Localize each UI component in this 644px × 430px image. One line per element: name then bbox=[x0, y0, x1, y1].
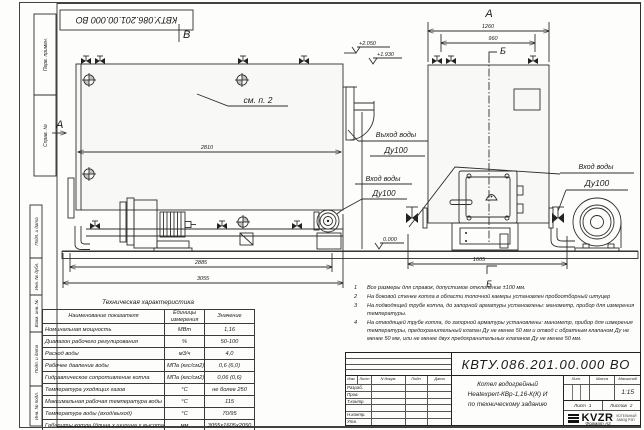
elevation-mid: +1.930 bbox=[377, 52, 395, 58]
view-a-mark: А bbox=[52, 119, 66, 133]
tech-header-unit: Единицы измерения bbox=[165, 310, 205, 324]
note-number: 4 bbox=[352, 320, 367, 344]
note-item: 4 На отводящей трубе котла, до запорной … bbox=[352, 320, 639, 344]
note-text: Все размеры для справок, допустимое откл… bbox=[367, 285, 639, 293]
note-number: 2 bbox=[352, 294, 367, 302]
margin-label-vzam-inv: Взам. инв. № bbox=[34, 299, 39, 327]
tech-table-title: Техническая характеристика bbox=[42, 299, 254, 306]
fan-scroll bbox=[573, 198, 621, 251]
table-row: Гидравлическое сопротивление котлаМПа (к… bbox=[43, 372, 255, 384]
staff-row bbox=[346, 405, 451, 412]
note-text: На подводящей трубе котла, до запорной а… bbox=[367, 303, 639, 319]
elevation-zero: 0.000 bbox=[383, 237, 398, 243]
dim-1260-label: 1260 bbox=[482, 24, 495, 30]
margin-label-inv-podl: Инв. № подл. bbox=[34, 392, 39, 420]
lit-mass-scale-headers: Лит. Масса Масштаб bbox=[564, 376, 640, 385]
staff-row: Утв. bbox=[346, 419, 451, 425]
table-row: Габариты котла (длина х ширина х высота)… bbox=[43, 420, 255, 430]
table-row: Температура уходящих газов°Сне более 250 bbox=[43, 384, 255, 396]
margin-label-podp-data-1: Подп. и дата bbox=[34, 217, 39, 246]
table-row: Расход водым3/ч4,0 bbox=[43, 348, 255, 360]
product-line2: Heatexpert-КВр-1,16-К(К) И bbox=[452, 390, 563, 400]
boiler-body-side bbox=[76, 64, 343, 210]
staff-row: Разраб. bbox=[346, 385, 451, 392]
margin-label-perv-primen: Перв. примен. bbox=[43, 38, 49, 71]
title-block-right: Лит. Масса Масштаб 1:15 Лист 1 Листов 2 bbox=[564, 376, 640, 425]
base-pedestal bbox=[452, 223, 518, 250]
section-b-top-label: Б bbox=[500, 46, 506, 56]
inlet-front-line1: Вход воды bbox=[579, 162, 615, 171]
inlet-label-side: Вход воды Ду100 bbox=[337, 174, 412, 214]
outlet-label: Выход воды Ду100 bbox=[348, 130, 433, 156]
title-block: КВТУ.086.201.00.000 ВО Изм. Лист N докум… bbox=[345, 352, 641, 426]
inlet-side-line2: Ду100 bbox=[371, 189, 396, 198]
staff-table: Изм. Лист N докум. Подп. Дата Разраб. Пр… bbox=[346, 376, 452, 425]
revision-header-row: Изм. Лист N докум. Подп. Дата bbox=[346, 376, 451, 385]
top-stamp: КВТУ.086.201.00.000 ВО bbox=[60, 10, 193, 30]
product-title: Котел водогрейный Heatexpert-КВр-1,16-К(… bbox=[452, 376, 564, 425]
dim-2885: 2885 bbox=[70, 253, 332, 272]
format-label: Формат А3 bbox=[556, 421, 640, 426]
margin-label-sprav-no: Справ. № bbox=[43, 124, 49, 147]
note-text: На отводящей трубе котла, до запорной ар… bbox=[367, 320, 639, 344]
mass-cell bbox=[590, 385, 616, 400]
revision-rows bbox=[346, 353, 452, 375]
outlet-pipe bbox=[343, 87, 374, 140]
table-row: Номинальная мощностьМВт1,16 bbox=[43, 324, 255, 336]
document-number: КВТУ.086.201.00.000 ВО bbox=[452, 353, 640, 375]
inlet-front-line2: Ду100 bbox=[584, 178, 610, 188]
inlet-side-line1: Вход воды bbox=[366, 174, 402, 183]
product-line3: по техническому заданию bbox=[452, 400, 563, 410]
air-valves-top bbox=[81, 56, 309, 64]
tech-characteristics: Техническая характеристика Наименование … bbox=[42, 299, 254, 430]
note-number: 3 bbox=[352, 303, 367, 319]
tech-header-name: Наименование показателя bbox=[43, 310, 165, 324]
note-item: 2 На боковой стенке котла в области топо… bbox=[352, 294, 639, 302]
table-row: Температура воды (вход/выход)°С70/95 bbox=[43, 408, 255, 420]
dim-3055-label: 3055 bbox=[197, 276, 210, 282]
dim-2810-label: 2810 bbox=[200, 145, 214, 151]
dim-960-label: 960 bbox=[488, 36, 498, 42]
note-item: 1 Все размеры для справок, допустимое от… bbox=[352, 285, 639, 293]
elevation-top: +2.050 bbox=[359, 41, 377, 47]
margin-label-podp-data-2: Подп. и дата bbox=[34, 344, 39, 373]
scale-value: 1:15 bbox=[615, 385, 640, 400]
table-row: Рабочее давление водыМПа (кгс/см2)0,6 (6… bbox=[43, 360, 255, 372]
table-row: Диапазон рабочего регулирования%50-100 bbox=[43, 336, 255, 348]
view-b-label: В bbox=[183, 29, 190, 41]
sheet-count-row: Лист 1 Листов 2 bbox=[564, 401, 640, 411]
product-line1: Котел водогрейный bbox=[452, 380, 563, 390]
top-stamp-number: КВТУ.086.201.00.000 ВО bbox=[76, 15, 178, 25]
front-view: А 1260 960 Б bbox=[406, 8, 634, 289]
lit-cells bbox=[564, 385, 590, 400]
see-note-label: см. п. 2 bbox=[244, 95, 273, 105]
staff-row: Н.контр. bbox=[346, 412, 451, 419]
staff-row: Т.контр. bbox=[346, 399, 451, 406]
table-row: Максимальная рабочая температура воды°С1… bbox=[43, 396, 255, 408]
view-a-label: А bbox=[55, 119, 63, 131]
outlet-label-line2: Ду100 bbox=[383, 146, 408, 155]
inlet-flange-side bbox=[314, 210, 341, 249]
margin-label-inv-dubl: Инв. № дубл. bbox=[34, 263, 39, 291]
dim-1605-label: 1605 bbox=[473, 257, 486, 263]
tech-table: Наименование показателя Единицы измерени… bbox=[42, 309, 255, 430]
bottom-pipe bbox=[75, 221, 343, 250]
section-b-top: Б bbox=[489, 46, 506, 62]
drawing-sheet: Перв. примен. Справ. № Подп. и дата Инв.… bbox=[0, 0, 644, 430]
note-text: На боковой стенке котла в области топочн… bbox=[367, 294, 639, 302]
tech-header-row: Наименование показателя Единицы измерени… bbox=[43, 310, 255, 324]
tech-header-value: Значение bbox=[205, 310, 255, 324]
note-number: 1 bbox=[352, 285, 367, 293]
notes-block: 1 Все размеры для справок, допустимое от… bbox=[352, 285, 639, 345]
dim-960: 960 bbox=[441, 34, 535, 52]
front-view-title: А bbox=[484, 8, 492, 20]
elevation-marks: +2.050 +1.930 0.000 bbox=[344, 41, 404, 249]
staff-row: Пров. bbox=[346, 392, 451, 399]
side-view: см. п. 2 2810 Выход воды Ду100 Вход воды… bbox=[52, 24, 433, 288]
view-b-mark: В bbox=[179, 24, 190, 42]
dim-2885-label: 2885 bbox=[194, 260, 208, 266]
ground-line bbox=[62, 251, 638, 259]
outlet-label-line1: Выход воды bbox=[376, 130, 417, 139]
inlet-valve-right bbox=[549, 207, 575, 247]
note-item: 3 На подводящей трубе котла, до запорной… bbox=[352, 303, 639, 319]
